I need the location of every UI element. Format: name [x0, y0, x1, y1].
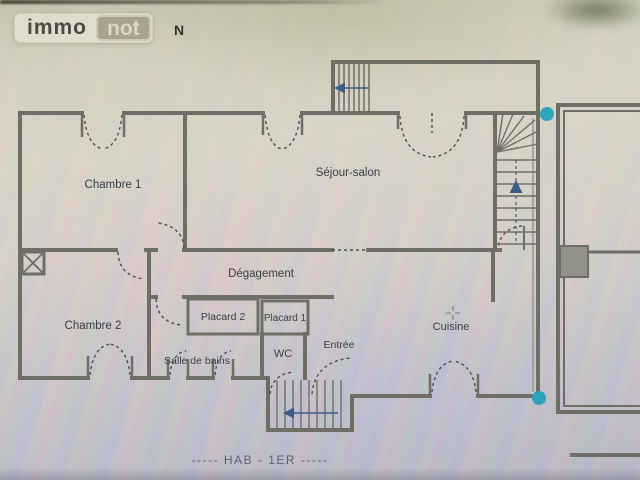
north-indicator: N — [174, 22, 184, 38]
room-label-chambre-2: Chambre 2 — [65, 320, 122, 332]
room-label-entree: Entrée — [324, 339, 355, 351]
room-label-placard-1: Placard 1 — [264, 313, 307, 324]
room-label-sejour-salon: Séjour-salon — [316, 167, 381, 179]
map-marker-dot — [540, 107, 554, 121]
room-label-placard-2: Placard 2 — [201, 311, 246, 323]
room-label-wc: WC — [274, 348, 292, 360]
room-label-salle-de-bains: Salle de bains — [164, 355, 230, 367]
center-mark-crosshair-icon — [446, 306, 460, 320]
floorplan-drawing: Chambre 1 Séjour-salon Dégagement Chambr… — [0, 0, 640, 480]
walls-annex — [558, 105, 640, 455]
immonot-logo: immo not — [14, 13, 153, 43]
annex-chimney-block — [560, 246, 588, 277]
right-staircase — [495, 113, 538, 244]
balcony-stairs — [334, 64, 369, 111]
walls-main — [20, 62, 538, 430]
entry-stairs — [277, 380, 341, 428]
map-marker-dot — [532, 391, 546, 405]
logo-text-immo: immo — [15, 14, 96, 42]
column-crossed-box-icon — [22, 252, 44, 274]
floor-caption: ----- HAB - 1ER ----- — [0, 453, 520, 467]
room-label-cuisine: Cuisine — [433, 321, 470, 333]
floorplan-photo: Chambre 1 Séjour-salon Dégagement Chambr… — [0, 0, 640, 480]
stair-up-arrow-icon — [510, 180, 523, 193]
logo-text-not: not — [96, 15, 151, 41]
room-label-degagement: Dégagement — [228, 268, 295, 280]
room-label-chambre-1: Chambre 1 — [85, 179, 142, 191]
photo-bottom-edge — [0, 468, 640, 480]
